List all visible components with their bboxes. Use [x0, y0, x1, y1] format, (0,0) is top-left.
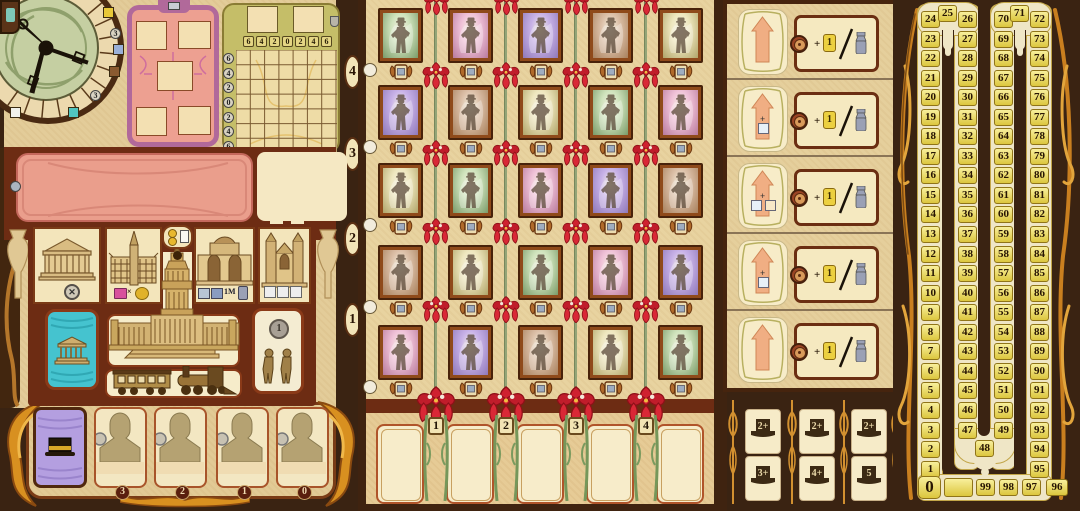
svg-text:2+: 2+ — [758, 421, 769, 432]
svg-text:2+: 2+ — [812, 421, 823, 432]
svg-text:5: 5 — [867, 468, 872, 479]
svg-text:3+: 3+ — [758, 468, 769, 479]
svg-text:4+: 4+ — [812, 468, 823, 479]
svg-text:2+: 2+ — [864, 421, 875, 432]
